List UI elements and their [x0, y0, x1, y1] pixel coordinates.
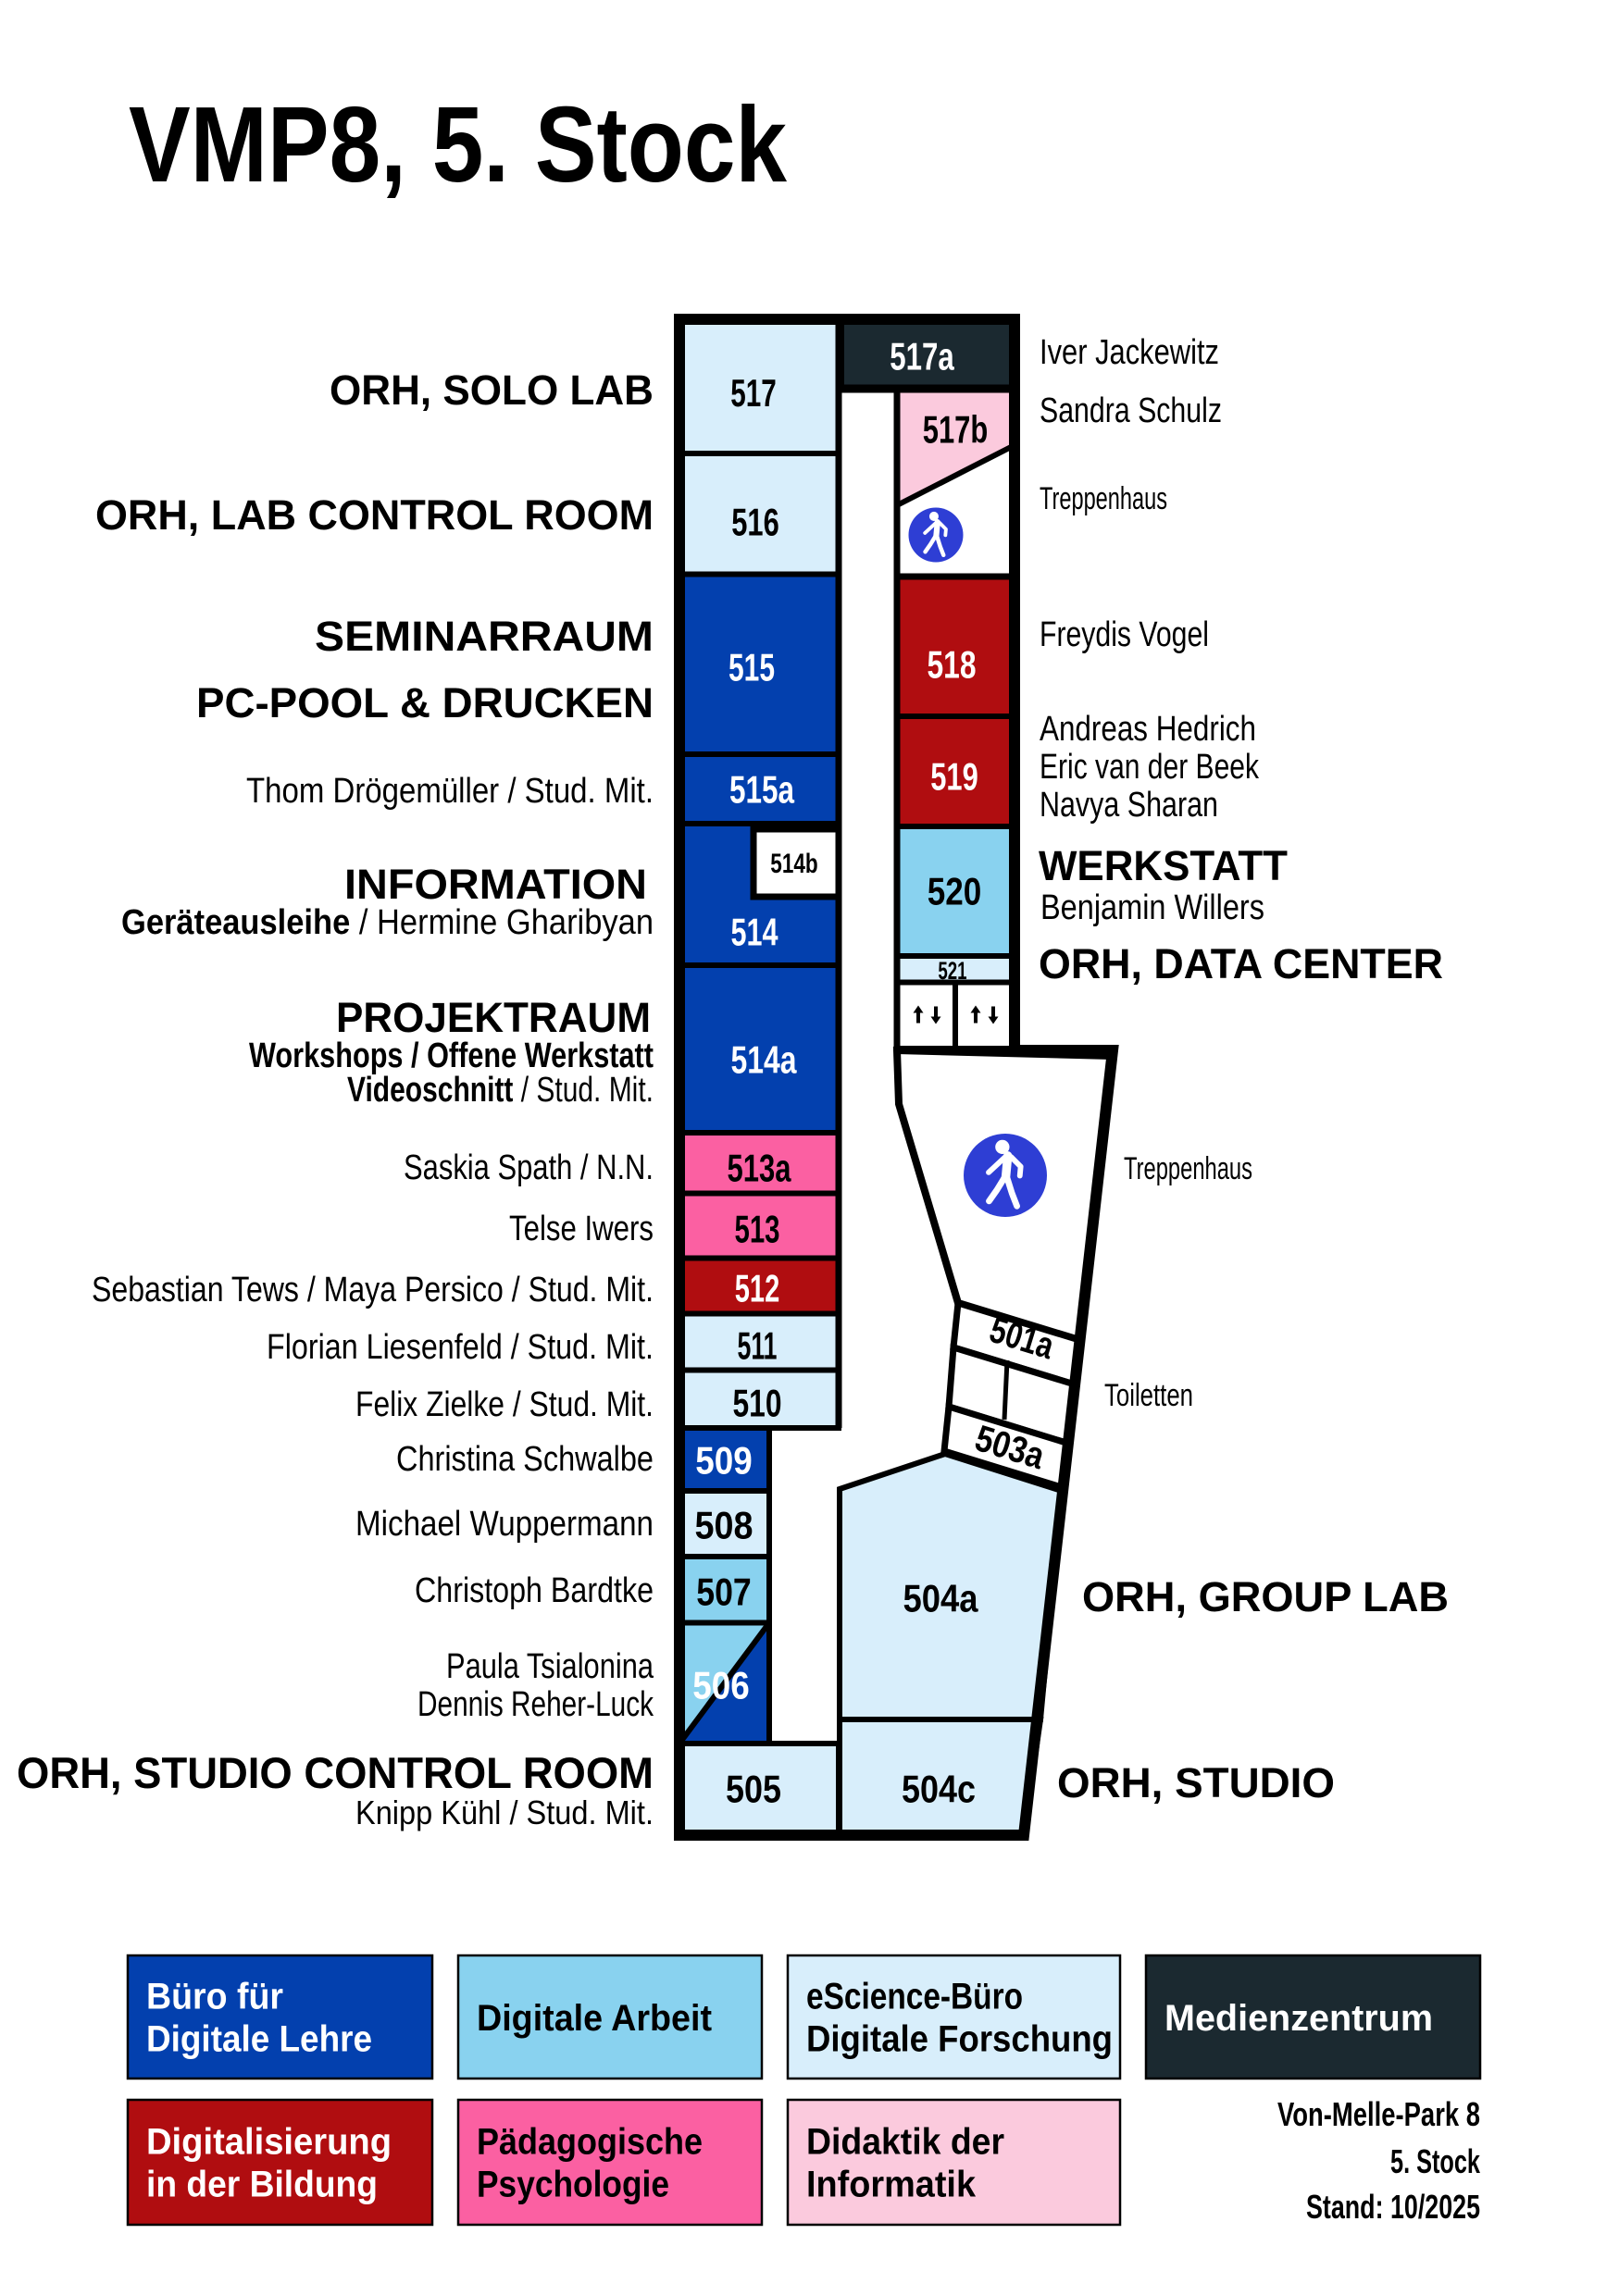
svg-text:506: 506	[692, 1663, 750, 1706]
svg-text:Thom Drögemüller / Stud. Mit.: Thom Drögemüller / Stud. Mit.	[246, 772, 654, 811]
svg-text:Benjamin Willers: Benjamin Willers	[1040, 888, 1264, 927]
svg-text:eScience-Büro: eScience-Büro	[806, 1977, 1023, 2017]
svg-text:519: 519	[930, 754, 978, 798]
svg-text:Medienzentrum: Medienzentrum	[1164, 1998, 1433, 2039]
svg-text:Psychologie: Psychologie	[477, 2165, 669, 2205]
svg-text:Sandra Schulz: Sandra Schulz	[1040, 391, 1222, 430]
svg-text:WERKSTATT: WERKSTATT	[1039, 842, 1288, 889]
svg-text:Freydis Vogel: Freydis Vogel	[1040, 615, 1209, 654]
svg-text:514a: 514a	[731, 1037, 797, 1081]
svg-text:514: 514	[731, 910, 778, 953]
svg-text:517: 517	[730, 371, 777, 415]
svg-text:Telse Iwers: Telse Iwers	[509, 1210, 654, 1248]
svg-text:510: 510	[733, 1381, 782, 1424]
svg-text:Felix Zielke / Stud. Mit.: Felix Zielke / Stud. Mit.	[355, 1385, 654, 1424]
svg-text:513a: 513a	[728, 1146, 791, 1189]
svg-text:PROJEKTRAUM: PROJEKTRAUM	[336, 994, 651, 1041]
svg-text:Knipp Kühl / Stud. Mit.: Knipp Kühl / Stud. Mit.	[355, 1793, 654, 1831]
svg-text:Workshops / Offene Werkstatt: Workshops / Offene Werkstatt	[249, 1036, 654, 1075]
svg-text:Dennis Reher-Luck: Dennis Reher-Luck	[417, 1685, 654, 1724]
svg-text:515: 515	[729, 645, 775, 689]
svg-text:Treppenhaus: Treppenhaus	[1040, 481, 1167, 516]
svg-text:ORH, DATA CENTER: ORH, DATA CENTER	[1039, 940, 1443, 987]
svg-text:Geräteausleihe / Hermine Ghari: Geräteausleihe / Hermine Gharibyan	[121, 903, 654, 942]
svg-text:Von-Melle-Park 8: Von-Melle-Park 8	[1277, 2095, 1480, 2133]
svg-text:Christina Schwalbe: Christina Schwalbe	[396, 1440, 654, 1479]
svg-text:Stand: 10/2025: Stand: 10/2025	[1306, 2188, 1480, 2226]
svg-text:Sebastian Tews / Maya Persico: Sebastian Tews / Maya Persico / Stud. Mi…	[92, 1271, 654, 1309]
svg-text:517b: 517b	[923, 407, 989, 451]
svg-text:516: 516	[731, 500, 779, 543]
svg-text:504c: 504c	[902, 1767, 976, 1810]
svg-text:Digitalisierung: Digitalisierung	[146, 2122, 392, 2163]
svg-text:ORH, STUDIO CONTROL ROOM: ORH, STUDIO CONTROL ROOM	[17, 1748, 654, 1797]
svg-text:Informatik: Informatik	[806, 2165, 977, 2205]
svg-text:Videoschnitt / Stud. Mit.: Videoschnitt / Stud. Mit.	[347, 1071, 654, 1110]
svg-text:Paula Tsialonina: Paula Tsialonina	[446, 1647, 654, 1686]
svg-text:Didaktik der: Didaktik der	[806, 2122, 1004, 2163]
svg-text:Büro für: Büro für	[146, 1977, 283, 2017]
svg-text:ORH, LAB CONTROL ROOM: ORH, LAB CONTROL ROOM	[95, 491, 654, 539]
svg-text:508: 508	[695, 1503, 753, 1546]
svg-text:Digitale Forschung: Digitale Forschung	[806, 2019, 1113, 2060]
svg-text:Eric van der Beek: Eric van der Beek	[1040, 748, 1260, 787]
svg-text:512: 512	[735, 1266, 780, 1309]
svg-text:in der Bildung: in der Bildung	[146, 2165, 378, 2205]
svg-text:Treppenhaus: Treppenhaus	[1124, 1151, 1252, 1186]
svg-text:Toiletten: Toiletten	[1104, 1378, 1193, 1413]
svg-text:513: 513	[735, 1207, 780, 1250]
svg-text:Christoph Bardtke: Christoph Bardtke	[415, 1571, 654, 1610]
svg-text:INFORMATION: INFORMATION	[344, 861, 647, 908]
svg-text:Saskia Spath / N.N.: Saskia Spath / N.N.	[404, 1148, 654, 1187]
svg-text:520: 520	[928, 869, 982, 912]
svg-text:Michael Wuppermann: Michael Wuppermann	[355, 1505, 654, 1544]
svg-text:VMP8, 5. Stock: VMP8, 5. Stock	[129, 84, 787, 205]
svg-text:SEMINARRAUM: SEMINARRAUM	[315, 613, 654, 660]
svg-text:515a: 515a	[729, 767, 794, 811]
svg-text:Pädagogische: Pädagogische	[477, 2122, 703, 2163]
svg-text:511: 511	[738, 1323, 778, 1367]
svg-text:517a: 517a	[890, 334, 954, 378]
svg-text:ORH, GROUP LAB: ORH, GROUP LAB	[1082, 1573, 1449, 1620]
svg-text:504a: 504a	[903, 1576, 979, 1620]
svg-text:521: 521	[938, 957, 966, 985]
svg-text:Iver Jackewitz: Iver Jackewitz	[1040, 333, 1219, 372]
svg-text:ORH, SOLO LAB: ORH, SOLO LAB	[330, 366, 654, 414]
svg-text:Digitale Arbeit: Digitale Arbeit	[477, 1998, 712, 2039]
svg-text:518: 518	[928, 642, 977, 686]
svg-text:Florian Liesenfeld / Stud. Mit: Florian Liesenfeld / Stud. Mit.	[267, 1328, 654, 1367]
svg-text:Navya Sharan: Navya Sharan	[1040, 786, 1218, 825]
svg-text:Digitale Lehre: Digitale Lehre	[146, 2019, 372, 2060]
svg-text:5. Stock: 5. Stock	[1390, 2142, 1481, 2180]
svg-text:514b: 514b	[770, 849, 817, 879]
svg-text:Andreas Hedrich: Andreas Hedrich	[1040, 710, 1256, 749]
svg-text:509: 509	[695, 1438, 753, 1482]
svg-text:ORH, STUDIO: ORH, STUDIO	[1057, 1759, 1335, 1806]
svg-text:PC-POOL & DRUCKEN: PC-POOL & DRUCKEN	[196, 679, 654, 726]
svg-text:507: 507	[696, 1570, 752, 1613]
svg-text:505: 505	[726, 1767, 781, 1810]
